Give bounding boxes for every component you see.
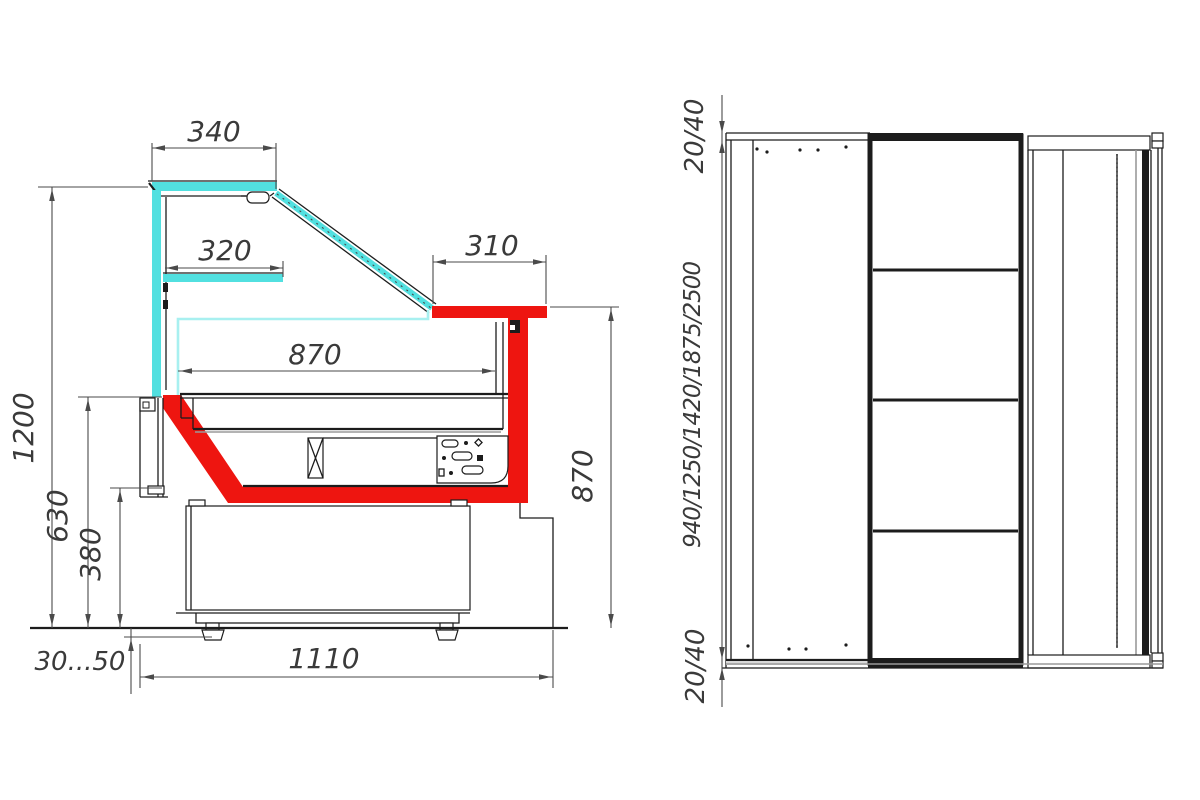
dim-label-380: 380 [74, 527, 107, 580]
dim-label-870h: 870 [288, 338, 341, 371]
dim-body-height: 870 [550, 307, 619, 628]
dim-label-bottom-20-40: 20/40 [681, 629, 711, 704]
rear-wall-panel [726, 133, 870, 668]
dim-label-310: 310 [465, 229, 518, 262]
dim-display-depth: 870 [178, 338, 495, 374]
dim-label-top-20-40: 20/40 [680, 99, 710, 174]
dim-worktop-width: 310 [433, 229, 546, 304]
fan-unit [308, 438, 323, 478]
front-panel [140, 398, 168, 497]
display-case-drawing: 340 320 310 870 1200 [0, 0, 1200, 800]
middle-shelf [163, 273, 283, 282]
side-section-view: 340 320 310 870 1200 [7, 115, 619, 694]
front-elevation-view: 20/40 940/1250/1420/1875/2500 20/40 [680, 95, 1163, 707]
rear-side-panel [520, 503, 553, 628]
canopy-lamp [241, 192, 269, 203]
dim-label-870v: 870 [566, 449, 599, 502]
dim-label-30-50: 30...50 [35, 647, 126, 677]
dim-base-height: 380 [74, 488, 162, 628]
base-cabinet [176, 500, 470, 623]
technical-drawing-page: 340 320 310 870 1200 [0, 0, 1200, 800]
rear-glass-panel [152, 190, 168, 397]
dim-label-630: 630 [41, 489, 74, 542]
glass-end-frame [868, 133, 1023, 668]
dim-label-340: 340 [187, 115, 240, 148]
adjustable-feet [202, 623, 458, 640]
dim-chain-vertical: 20/40 940/1250/1420/1875/2500 20/40 [680, 95, 725, 707]
dim-shelf-width: 320 [165, 234, 283, 277]
dim-label-320: 320 [198, 234, 251, 267]
dim-counter-height: 630 [41, 397, 162, 628]
dim-foot-adjust: 30...50 [35, 628, 212, 694]
dim-canopy-width: 340 [152, 115, 276, 189]
dim-base-length: 1110 [140, 630, 553, 688]
dim-label-lengths: 940/1250/1420/1875/2500 [680, 262, 706, 548]
slanted-front-glass [272, 189, 436, 313]
screw-dots [746, 145, 847, 650]
dim-label-1110: 1110 [288, 642, 359, 675]
dim-label-1200: 1200 [7, 392, 40, 463]
louver-panel [437, 436, 508, 483]
